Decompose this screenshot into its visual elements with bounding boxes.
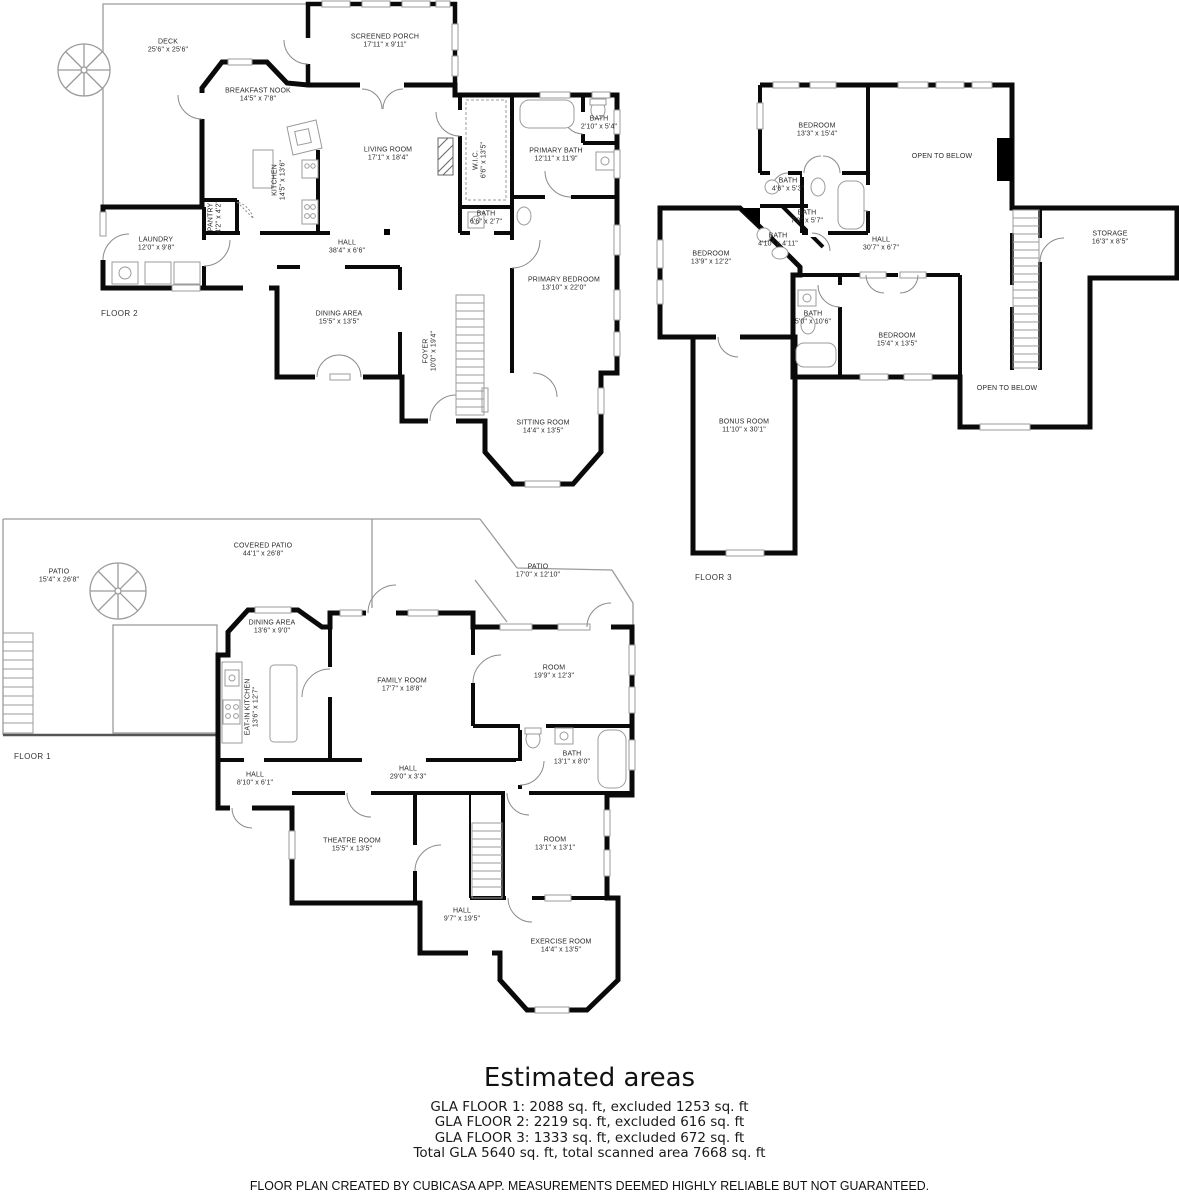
room-label-breakfast-nook: BREAKFAST NOOK14'5" x 7'8" [225,88,291,105]
room-label-dining-area-floor1: DINING AREA13'6" x 9'0" [249,620,296,637]
room-label-open-to-below-top: OPEN TO BELOW [912,153,972,161]
room-label-bedroom-left: BEDROOM13'9" x 12'2" [691,251,731,268]
room-label-bath-small-top: BATH4'6" x 5'3" [772,178,804,195]
room-label-wic: W.I.C.6'6" x 13'5" [473,142,490,178]
room-label-hall-long: HALL29'0" x 3'3" [390,766,426,783]
room-label-pantry: PANTRY4'2" x 4'2" [208,201,225,233]
room-label-primary-bath: PRIMARY BATH12'11" x 11'9" [529,148,583,165]
floor1-plan-drawing [0,515,660,1035]
room-label-eat-in-kitchen: EAT-IN KITCHEN13'6" x 12'7" [245,679,262,736]
room-label-open-to-below-lower: OPEN TO BELOW [977,385,1037,393]
room-label-deck: DECK25'6" x 25'6" [148,39,188,56]
room-label-bath-mid-floor3: BATH7'0" x 5'7" [791,210,823,227]
room-label-sitting-room: SITTING ROOM14'4" x 13'5" [516,420,569,437]
room-label-bath-small-left: BATH4'10" x 4'11" [758,233,798,250]
room-label-bedroom-top: BEDROOM13'3" x 15'4" [797,123,837,140]
gla-floor2-line: GLA FLOOR 2: 2219 sq. ft, excluded 616 s… [0,1115,1179,1131]
room-label-living-room: LIVING ROOM17'1" x 18'4" [364,147,412,164]
room-label-bath-top: BATH2'10" x 5'4" [581,116,617,133]
room-label-room-lower: ROOM13'1" x 13'1" [535,837,575,854]
room-label-laundry: LAUNDRY12'0" x 9'8" [138,237,174,254]
gla-floor3-line: GLA FLOOR 3: 1333 sq. ft, excluded 672 s… [0,1131,1179,1147]
room-label-bedroom-lower: BEDROOM15'4" x 13'5" [877,333,917,350]
room-label-storage: STORAGE16'3" x 8'5" [1092,231,1128,248]
room-label-hall-lower: HALL9'7" x 19'5" [444,908,480,925]
room-label-primary-bedroom: PRIMARY BEDROOM13'10" x 22'0" [528,277,600,294]
room-label-room-right: ROOM19'9" x 12'3" [534,665,574,682]
room-label-theatre-room: THEATRE ROOM15'5" x 13'5" [323,838,381,855]
room-label-patio-left: PATIO15'4" x 26'8" [39,569,79,586]
disclaimer-text: FLOOR PLAN CREATED BY CUBICASA APP. MEAS… [29,1179,1149,1192]
room-label-bath-lower: BATH5'0" x 10'6" [795,311,831,328]
estimated-areas-title: Estimated areas [0,1064,1179,1093]
room-label-dining-area-floor2: DINING AREA15'5" x 13'5" [316,311,363,328]
floor2-tag: FLOOR 2 [101,310,138,318]
estimated-areas-block: Estimated areas GLA FLOOR 1: 2088 sq. ft… [0,1064,1179,1162]
room-label-covered-patio: COVERED PATIO44'1" x 26'8" [234,543,292,560]
room-label-bath-mid: BATH6'6" x 2'7" [470,211,502,228]
floor1-tag: FLOOR 1 [14,753,51,761]
patio-stairs-icon [3,633,33,733]
hall-marker-dot [384,229,390,235]
gla-floor1-line: GLA FLOOR 1: 2088 sq. ft, excluded 1253 … [0,1100,1179,1116]
floor3-tag: FLOOR 3 [695,574,732,582]
room-label-bath-floor1: BATH13'1" x 8'0" [554,751,590,768]
room-label-foyer: FOYER10'0" x 19'4" [423,331,440,371]
room-label-family-room: FAMILY ROOM17'7" x 18'8" [377,678,427,695]
room-label-patio-right: PATIO17'0" x 12'10" [516,564,560,581]
room-label-hall-floor2: HALL38'4" x 6'6" [329,240,365,257]
room-label-hall-floor3: HALL30'7" x 6'7" [863,237,899,254]
room-label-bonus-room: BONUS ROOM11'10" x 30'1" [719,419,769,436]
room-label-kitchen: KITCHEN14'5" x 13'6" [272,160,289,200]
floor-plan-document: DECK25'6" x 25'6" SCREENED PORCH17'11" x… [0,0,1179,1196]
laundry-fixtures [112,262,200,284]
room-label-hall-small: HALL8'10" x 6'1" [237,772,273,789]
room-label-screened-porch: SCREENED PORCH17'11" x 9'11" [351,34,419,51]
room-label-exercise-room: EXERCISE ROOM14'4" x 13'5" [530,939,591,956]
wall-wedge [740,208,760,228]
gla-total-line: Total GLA 5640 sq. ft, total scanned are… [0,1146,1179,1162]
floor3-plan-drawing [660,75,1179,585]
chimney-block [997,138,1013,181]
